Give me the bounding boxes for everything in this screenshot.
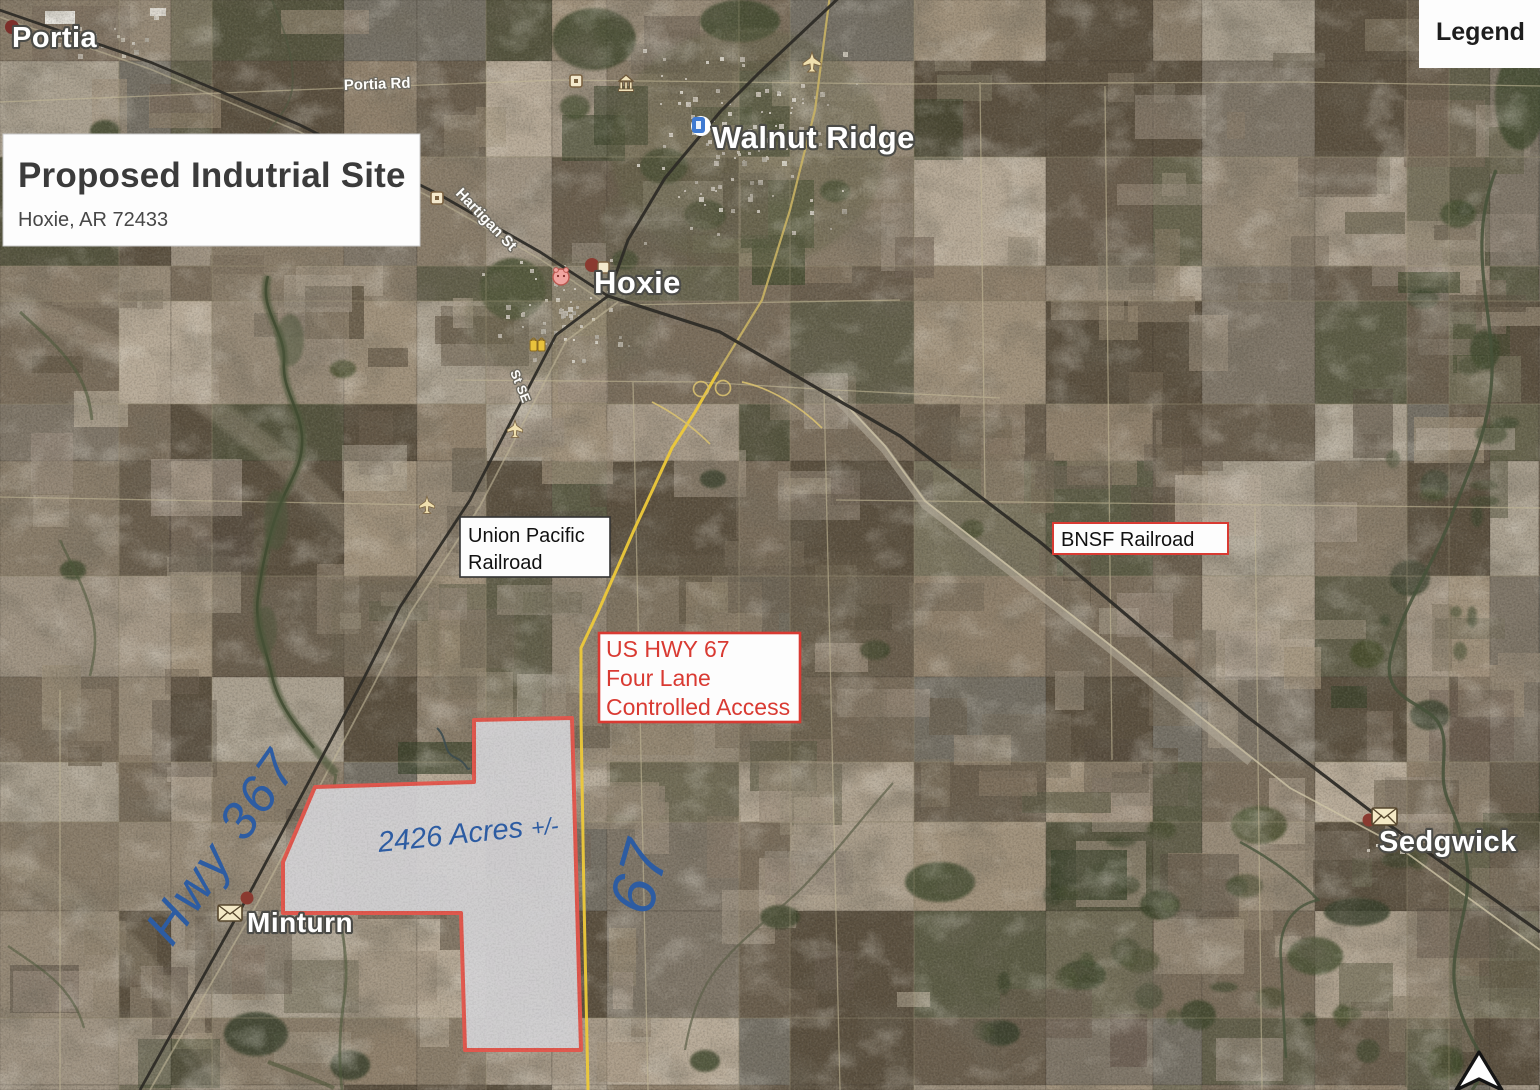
svg-text:Proposed Indutrial Site: Proposed Indutrial Site (18, 156, 406, 195)
svg-text:Walnut Ridge: Walnut Ridge (712, 120, 915, 155)
svg-text:Controlled Access: Controlled Access (606, 694, 790, 720)
svg-text:Portia Rd: Portia Rd (344, 75, 411, 94)
svg-text:Hoxie, AR 72433: Hoxie, AR 72433 (18, 209, 168, 231)
svg-text:Legend: Legend (1436, 18, 1525, 46)
svg-text:Four Lane: Four Lane (606, 665, 711, 691)
svg-text:Sedgwick: Sedgwick (1379, 826, 1517, 858)
svg-text:US HWY 67: US HWY 67 (606, 636, 730, 662)
svg-text:Railroad: Railroad (468, 552, 542, 574)
svg-text:Hoxie: Hoxie (594, 265, 681, 300)
svg-text:Minturn: Minturn (247, 907, 353, 938)
svg-text:Portia: Portia (12, 22, 98, 54)
svg-text:Union Pacific: Union Pacific (468, 525, 585, 547)
svg-text:BNSF Railroad: BNSF Railroad (1061, 529, 1194, 551)
